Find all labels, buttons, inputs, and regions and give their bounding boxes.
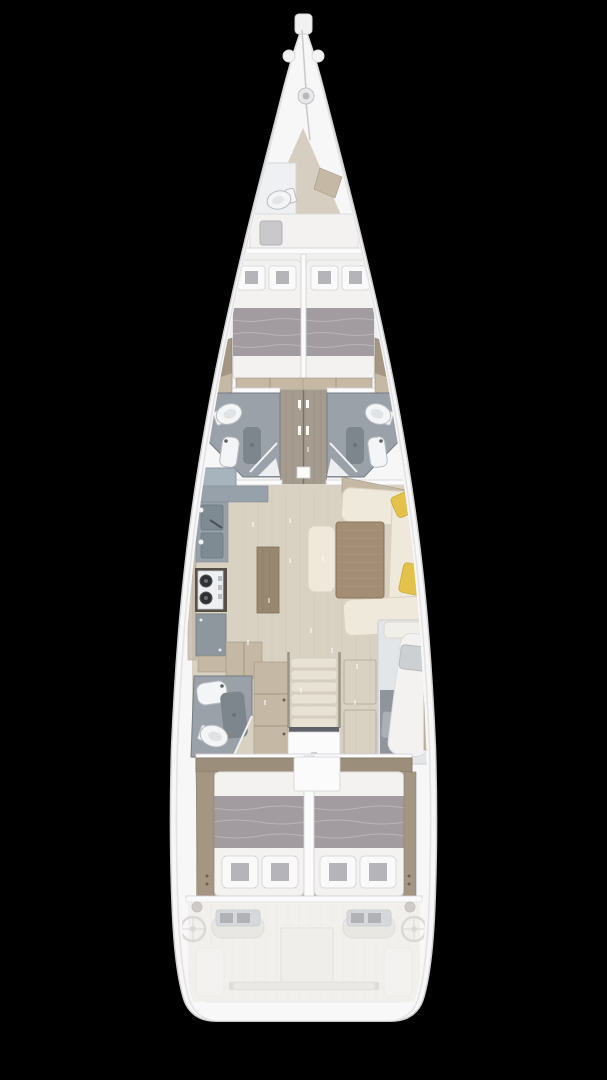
cabin-divider xyxy=(301,254,306,380)
blanket xyxy=(233,308,301,356)
door-handle xyxy=(306,426,309,435)
anchor-roller xyxy=(295,14,312,34)
sink-basin xyxy=(201,533,223,558)
stair-step xyxy=(291,706,337,716)
aft-bed-port xyxy=(214,772,304,896)
blanket xyxy=(306,308,374,356)
stair-step xyxy=(291,670,337,680)
vanity-sink xyxy=(367,436,388,468)
corridor xyxy=(280,390,327,487)
door-handle xyxy=(298,426,301,435)
floor-plan-canvas xyxy=(0,0,607,1080)
faucet xyxy=(224,439,228,443)
stair-step xyxy=(291,658,337,668)
forward-bed-port xyxy=(233,260,301,380)
crew-berth-pillow xyxy=(260,221,282,245)
dinette-table xyxy=(336,522,384,598)
companionway-hatch-panel xyxy=(294,757,340,791)
yacht-floor-plan xyxy=(0,0,607,1080)
drain xyxy=(353,443,357,447)
forepeak-bulkhead xyxy=(245,248,363,254)
aft-trim-starboard xyxy=(404,772,416,898)
bench-seat xyxy=(308,526,335,592)
stair-step xyxy=(291,682,337,692)
mid-wardrobe xyxy=(254,662,288,758)
counter-top xyxy=(196,486,268,502)
stair-step xyxy=(291,694,337,704)
stern-ghost-overlay xyxy=(160,898,450,1028)
forward-bed-starboard xyxy=(306,260,374,380)
faucet xyxy=(379,439,383,443)
aft-cabins xyxy=(186,754,422,902)
drain xyxy=(232,713,236,717)
center-island xyxy=(257,547,279,613)
step-edge xyxy=(289,727,339,732)
bow-cleat-starboard xyxy=(312,50,324,62)
drain xyxy=(250,443,254,447)
windlass-hub xyxy=(303,93,310,100)
door-handle xyxy=(306,400,309,408)
aft-trim-port xyxy=(196,772,214,898)
door-sill xyxy=(297,467,310,478)
faucet xyxy=(220,684,224,688)
bow-cleat-port xyxy=(283,50,295,62)
vanity-sink xyxy=(219,436,240,468)
stair-step xyxy=(291,718,337,728)
